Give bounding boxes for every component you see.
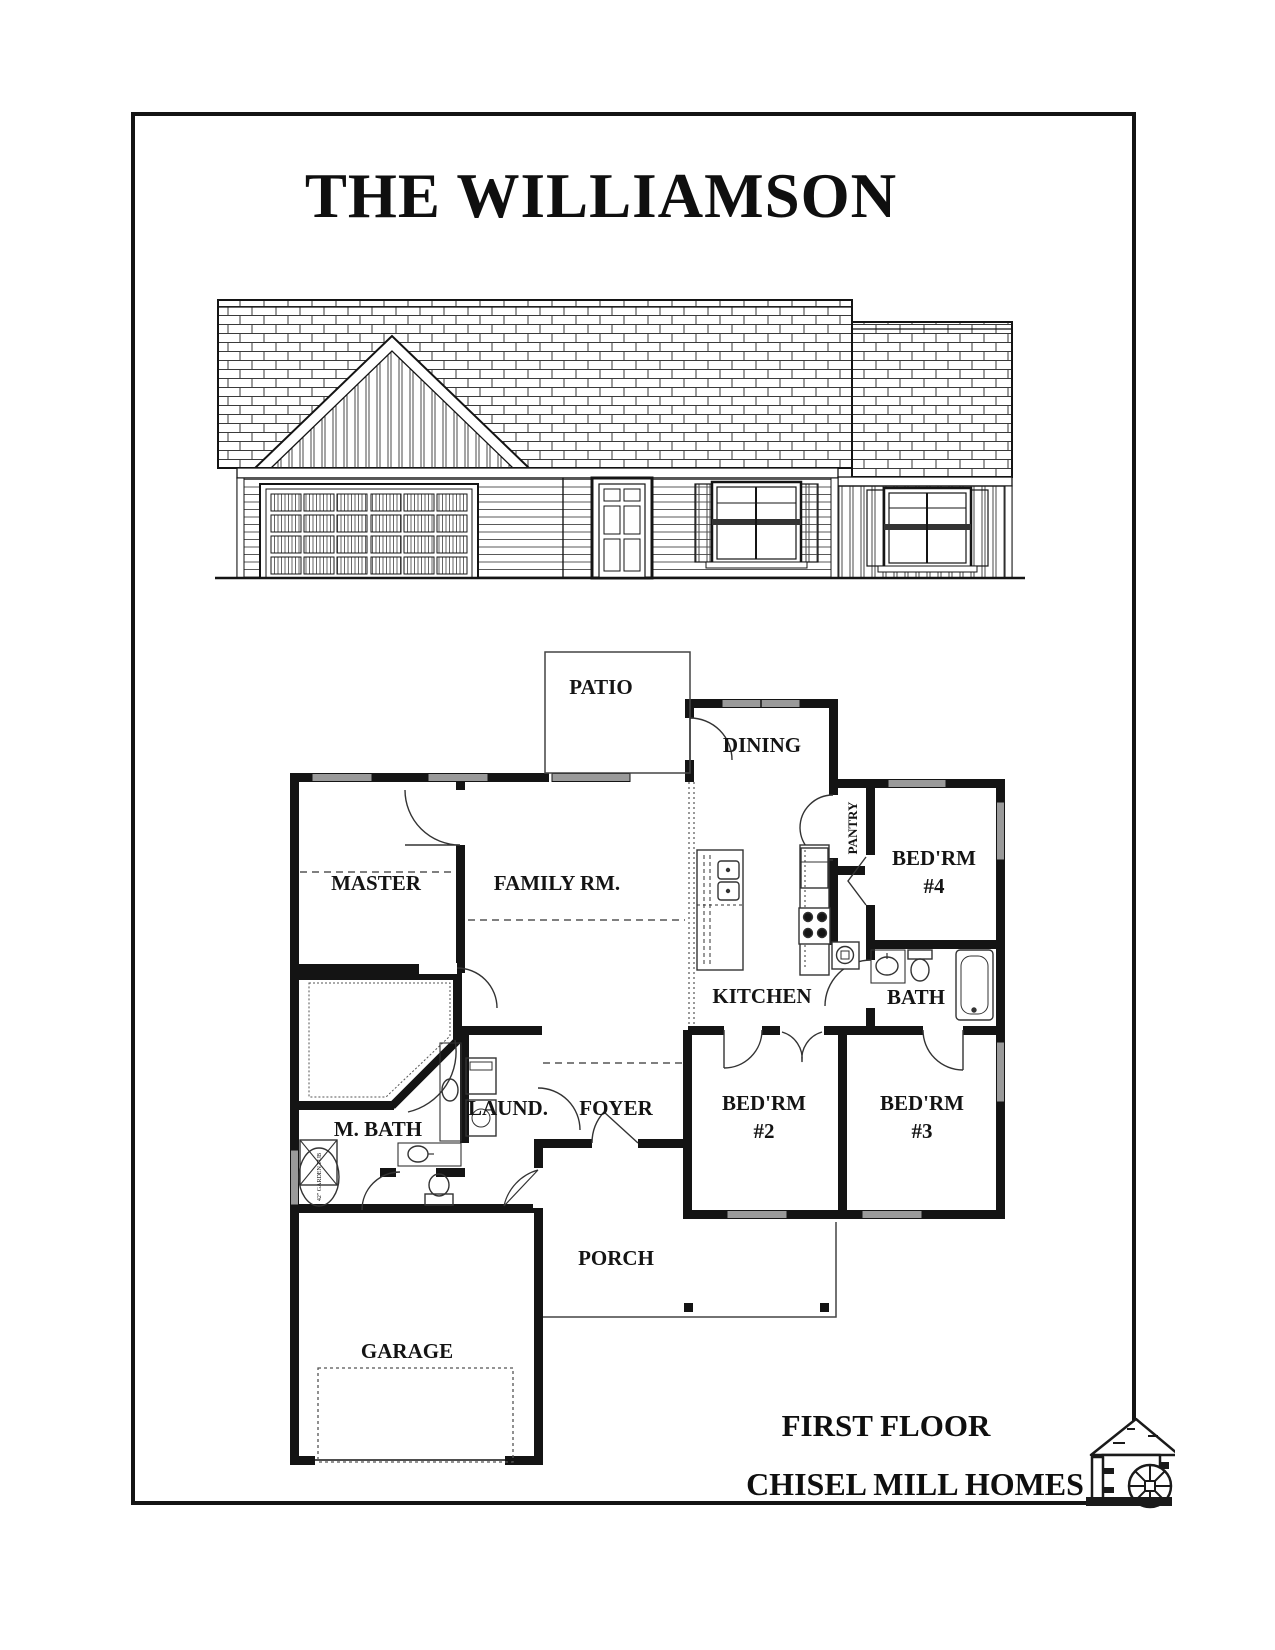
room-label-master: MASTER <box>331 871 422 895</box>
bath-vanity <box>871 950 905 983</box>
elevation-fascia-main <box>237 468 838 478</box>
elevation-fascia-wing <box>838 477 1012 486</box>
room-label-patio: PATIO <box>569 675 632 699</box>
room-label-bed3-name: BED'RM <box>880 1091 964 1115</box>
room-label-bed2-num: #2 <box>754 1119 775 1143</box>
plan-title: THE WILLIAMSON <box>131 160 1071 233</box>
room-label-kitchen: KITCHEN <box>712 984 811 1008</box>
room-label-laundry: LAUND. <box>468 1096 548 1120</box>
bath-toilet <box>908 950 932 981</box>
room-label-mbath: M. BATH <box>334 1117 422 1141</box>
kitchen-counter <box>799 845 859 975</box>
room-label-garage: GARAGE <box>361 1339 453 1363</box>
plan-sheet: THE WILLIAMSON <box>0 0 1275 1650</box>
first-floor-plan: PATIO DINING PANTRY MASTER FAMILY RM. KI… <box>280 640 1010 1480</box>
garden-tub-label: 42" GARDEN TUB <box>317 1153 323 1201</box>
patio-outline <box>545 652 690 773</box>
porch-post <box>820 1303 829 1312</box>
bath-tub <box>956 950 993 1020</box>
room-label-family: FAMILY RM. <box>494 871 620 895</box>
elevation-front-door <box>592 478 652 578</box>
room-label-bed4-name: BED'RM <box>892 846 976 870</box>
room-label-dining: DINING <box>723 733 801 757</box>
closet-diagonal-wall <box>392 1038 460 1106</box>
kitchen-island <box>697 850 743 970</box>
corner-sink <box>832 942 859 969</box>
room-label-porch: PORCH <box>578 1246 654 1270</box>
house-elevation-drawing <box>210 270 1030 585</box>
elevation-window-2 <box>867 488 988 572</box>
mbath-vanity <box>398 1043 461 1166</box>
elevation-right-roof <box>852 322 1012 477</box>
elevation-window-1 <box>695 482 818 568</box>
room-label-foyer: FOYER <box>579 1096 653 1120</box>
floor-label: FIRST FLOOR <box>736 1408 1036 1444</box>
range-stove <box>799 908 830 944</box>
elevation-garage-door <box>260 484 478 578</box>
mbath-toilet <box>425 1174 453 1205</box>
room-label-bed4-num: #4 <box>924 874 946 898</box>
porch-post <box>684 1303 693 1312</box>
room-label-bath: BATH <box>887 985 945 1009</box>
company-name: CHISEL MILL HOMES <box>695 1466 1135 1503</box>
room-label-pantry: PANTRY <box>845 801 860 854</box>
room-label-bed3-num: #3 <box>912 1119 933 1143</box>
room-label-bed2-name: BED'RM <box>722 1091 806 1115</box>
mill-logo-icon <box>1080 1405 1175 1510</box>
